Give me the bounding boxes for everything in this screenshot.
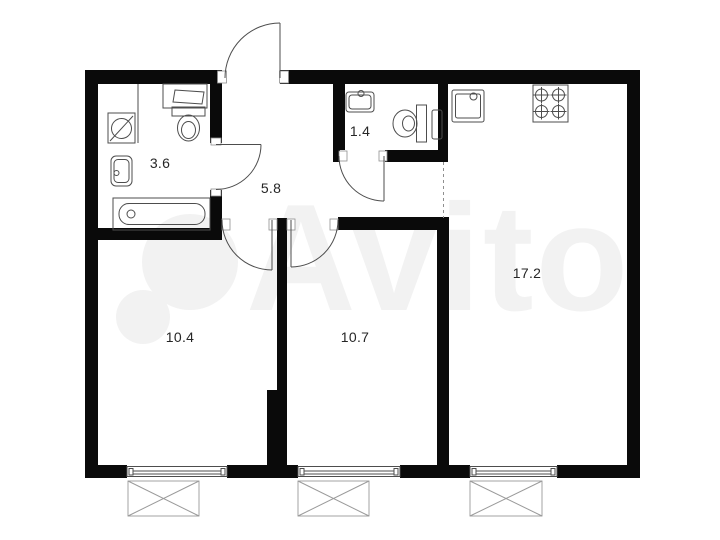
- area-label-room-middle: 10.7: [341, 329, 369, 345]
- kitchen-fixtures: [452, 85, 568, 122]
- window-kitchen: [470, 467, 557, 477]
- window-room-middle: [298, 467, 400, 477]
- window-room-left: [127, 467, 227, 477]
- floor-plan-canvas: Avito: [0, 0, 720, 540]
- area-label-bathroom: 3.6: [150, 155, 170, 171]
- counter-sink-icon: [163, 84, 207, 108]
- window-sill-kitchen: [470, 481, 542, 516]
- hand-sink-icon: [111, 156, 132, 186]
- floor-plan-drawing: [0, 0, 720, 540]
- wc-sink-icon: [346, 91, 374, 113]
- entrance-door: [225, 23, 280, 78]
- kitchen-sink-icon: [452, 90, 484, 122]
- area-label-wc: 1.4: [350, 123, 370, 139]
- area-label-hallway: 5.8: [261, 180, 281, 196]
- wc-toilet-icon: [393, 105, 427, 142]
- window-sill-room-left: [128, 481, 199, 516]
- area-label-kitchen-living: 17.2: [513, 265, 541, 281]
- washing-machine-icon: [108, 113, 135, 143]
- bathroom-door: [216, 145, 261, 190]
- bathroom-toilet-icon: [172, 107, 205, 141]
- bathtub-icon: [113, 198, 210, 230]
- wc-door: [339, 156, 384, 201]
- area-label-room-left: 10.4: [166, 329, 194, 345]
- stove-icon: [533, 85, 568, 122]
- window-sill-room-middle: [298, 481, 369, 516]
